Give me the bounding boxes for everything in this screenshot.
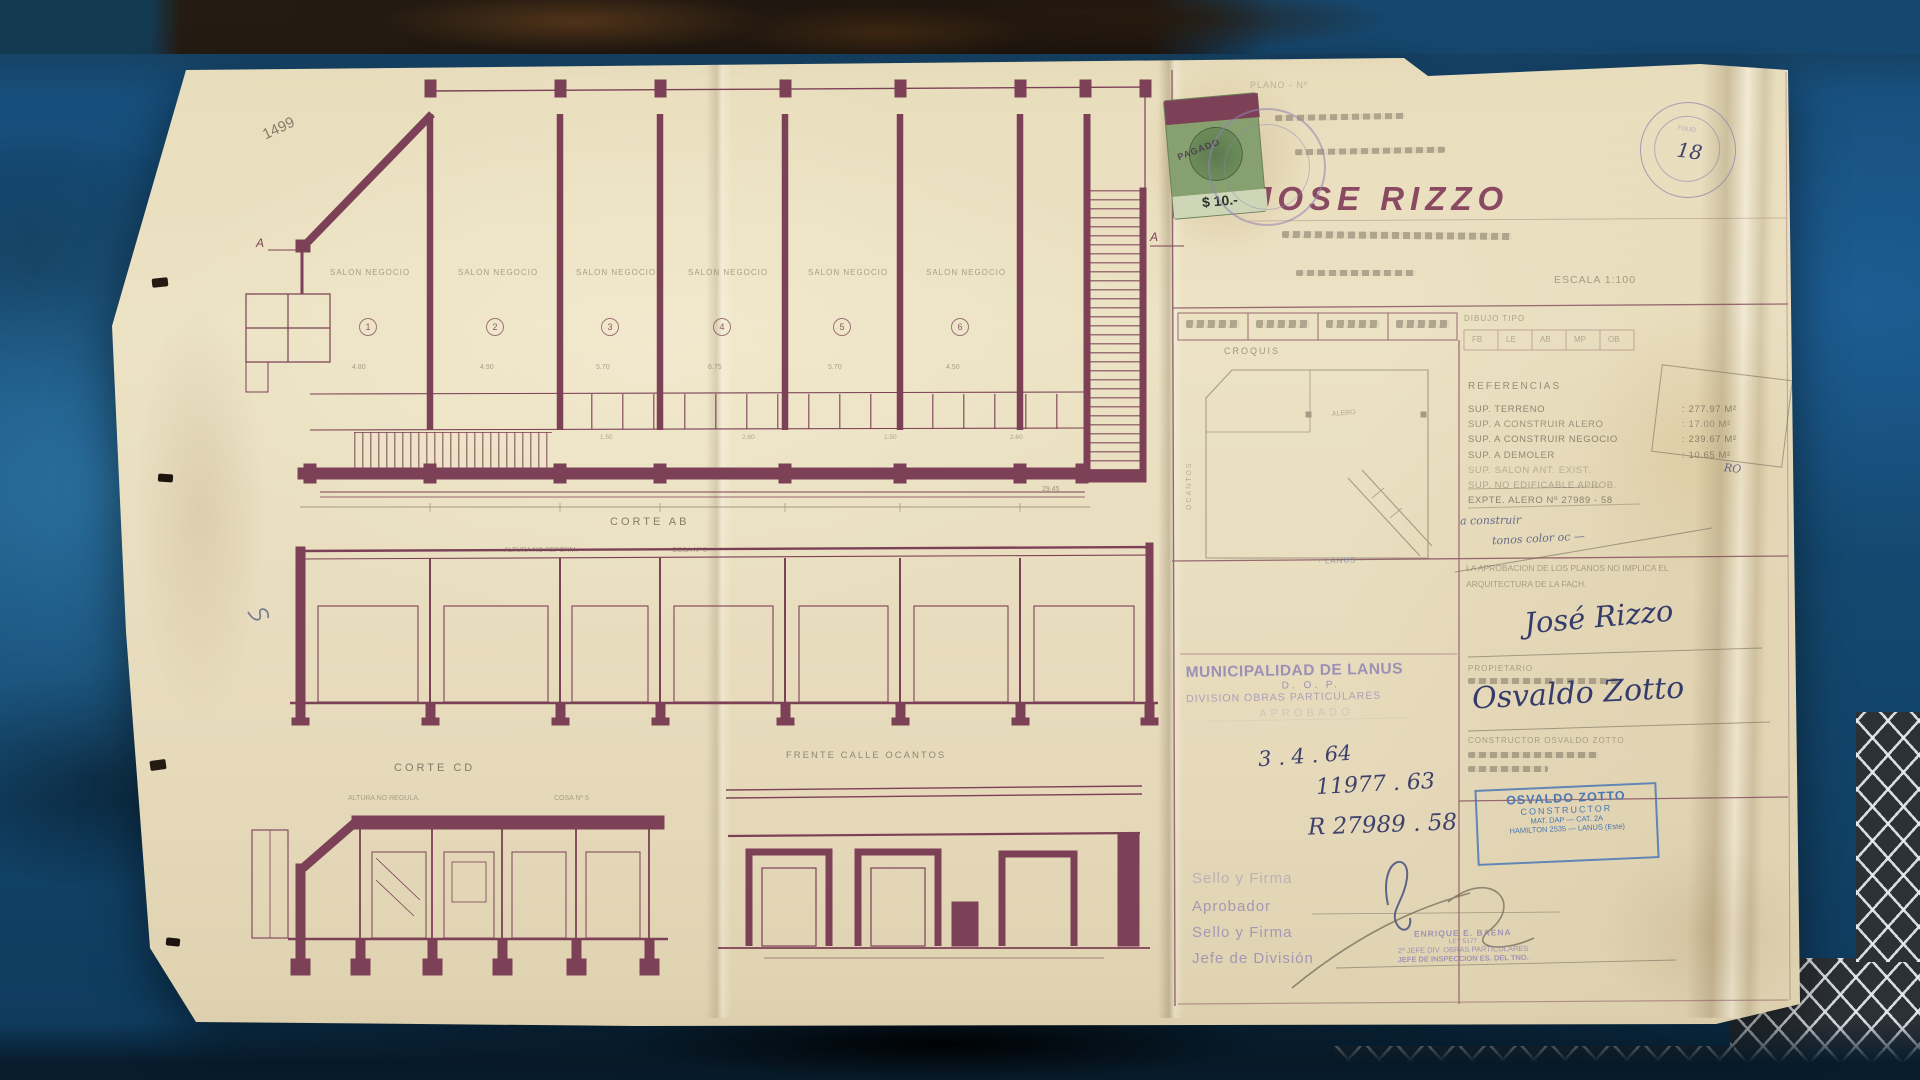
staple-mark (149, 111, 164, 122)
blueprint-sheet: 1499 A A SALON NEGOCIO SALON NEGOCIO SAL… (0, 0, 1920, 1080)
paper-vignette (0, 0, 1920, 1080)
photo-of-blueprint: 1499 A A SALON NEGOCIO SALON NEGOCIO SAL… (0, 0, 1920, 1080)
sheet-shadow-wrap: 1499 A A SALON NEGOCIO SALON NEGOCIO SAL… (0, 0, 1920, 1080)
